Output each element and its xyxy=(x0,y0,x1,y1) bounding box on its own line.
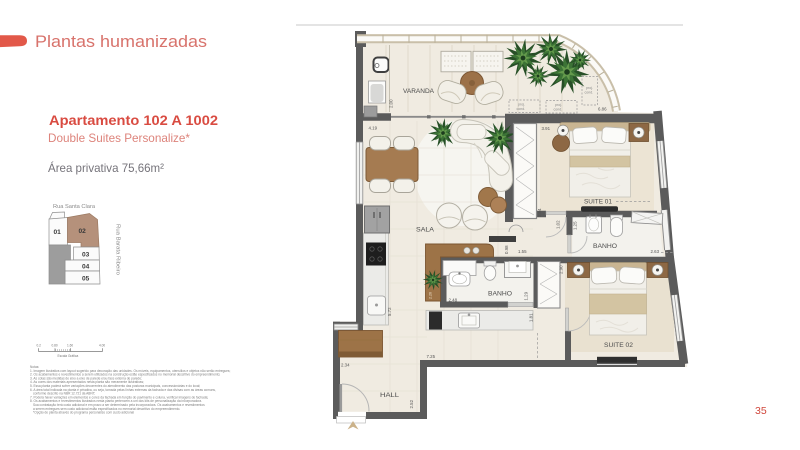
svg-text:SUITE 01: SUITE 01 xyxy=(584,199,612,206)
svg-text:cond.: cond. xyxy=(554,108,563,112)
svg-text:0.98: 0.98 xyxy=(504,245,509,254)
svg-text:proj.: proj. xyxy=(586,86,593,90)
svg-text:BANHO: BANHO xyxy=(488,291,512,298)
svg-text:Plantas humanizadas: Plantas humanizadas xyxy=(35,33,207,51)
svg-text:2.26: 2.26 xyxy=(429,292,433,299)
svg-text:0.2: 0.2 xyxy=(37,344,42,348)
svg-text:Rua Santa Clara: Rua Santa Clara xyxy=(53,204,95,210)
svg-text:proj.: proj. xyxy=(555,103,562,107)
svg-text:4.00: 4.00 xyxy=(99,344,105,348)
svg-text:SUITE 02: SUITE 02 xyxy=(604,342,633,349)
svg-text:proj.: proj. xyxy=(518,103,525,107)
svg-text:Double Suites Personalize*: Double Suites Personalize* xyxy=(48,131,190,145)
svg-text:35: 35 xyxy=(755,405,767,417)
svg-text:3.91: 3.91 xyxy=(542,126,551,131)
svg-text:7.25: 7.25 xyxy=(427,354,436,359)
svg-text:2.48: 2.48 xyxy=(449,298,458,303)
svg-text:HALL: HALL xyxy=(380,392,399,399)
svg-text:1.55: 1.55 xyxy=(518,249,527,254)
svg-text:2.52: 2.52 xyxy=(409,399,414,408)
svg-text:VARANDA: VARANDA xyxy=(403,88,434,95)
svg-text:1.81: 1.81 xyxy=(529,313,534,322)
svg-text:03: 03 xyxy=(82,252,90,259)
svg-text:6.86: 6.86 xyxy=(598,107,607,112)
svg-text:cond.: cond. xyxy=(517,107,526,111)
svg-text:SALA: SALA xyxy=(416,227,434,234)
svg-text:04: 04 xyxy=(82,264,90,271)
svg-text:4.19: 4.19 xyxy=(369,126,378,131)
svg-text:1.29: 1.29 xyxy=(524,291,529,300)
svg-text:2.84: 2.84 xyxy=(537,208,542,217)
svg-text:2.63: 2.63 xyxy=(651,249,660,254)
svg-text:01: 01 xyxy=(54,229,62,236)
svg-text:1.25: 1.25 xyxy=(573,221,578,230)
svg-text:1.02: 1.02 xyxy=(556,220,561,229)
svg-text:02: 02 xyxy=(79,228,87,235)
svg-text:Rua Barata Ribeiro: Rua Barata Ribeiro xyxy=(115,224,121,275)
svg-text:2.00: 2.00 xyxy=(389,99,394,108)
svg-text:2.34: 2.34 xyxy=(341,363,350,368)
svg-text:cond.: cond. xyxy=(585,91,594,95)
svg-text:1.60: 1.60 xyxy=(67,344,73,348)
svg-text:5.72: 5.72 xyxy=(387,307,392,316)
svg-text:*Opção de planta através do pr: *Opção de planta através do programa per… xyxy=(33,411,134,415)
svg-text:2.90: 2.90 xyxy=(559,265,564,274)
svg-text:Área privativa 75,66m²: Área privativa 75,66m² xyxy=(48,160,164,175)
svg-text:05: 05 xyxy=(82,276,90,283)
svg-text:BANHO: BANHO xyxy=(593,243,617,250)
svg-text:0.80: 0.80 xyxy=(52,344,58,348)
svg-text:Apartamento 102 A 1002: Apartamento 102 A 1002 xyxy=(49,113,218,128)
svg-text:Escala Gráfica: Escala Gráfica xyxy=(58,354,79,358)
